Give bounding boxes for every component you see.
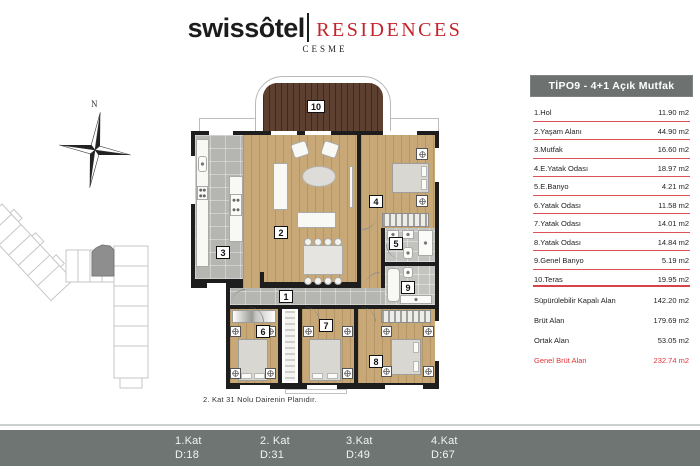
nightstand-icon bbox=[381, 326, 392, 337]
floor-label: 1.Kat bbox=[175, 434, 202, 448]
row-label: 1.Hol bbox=[534, 108, 552, 117]
nightstand-icon bbox=[342, 368, 353, 379]
bathtub-icon bbox=[387, 268, 400, 302]
row-label: 4.E.Yatak Odası bbox=[534, 164, 588, 173]
row-label: 3.Mutfak bbox=[534, 145, 563, 154]
window bbox=[305, 131, 331, 135]
row-label: 7.Yatak Odası bbox=[534, 219, 581, 228]
nightstand-icon bbox=[265, 368, 276, 379]
room-label-bed7: 7 bbox=[319, 319, 333, 332]
footer-bar: 1.Kat D:18 2. Kat D:31 3.Kat D:49 4.Kat … bbox=[0, 430, 700, 466]
table-row: 5.E.Banyo4.21 m2 bbox=[533, 177, 690, 196]
bed-icon bbox=[238, 339, 268, 381]
unit-label: D:67 bbox=[431, 448, 458, 462]
row-area: 16.60 m2 bbox=[658, 145, 689, 154]
bed-icon bbox=[392, 163, 429, 193]
unit-type-header: TİPO9 - 4+1 Açık Mutfak bbox=[530, 75, 693, 97]
table-row: 1.Hol11.90 m2 bbox=[533, 103, 690, 122]
table-row: 4.E.Yatak Odası18.97 m2 bbox=[533, 159, 690, 178]
room-label-ensuite: 5 bbox=[389, 237, 403, 250]
room-label-bed8: 8 bbox=[369, 355, 383, 368]
row-label: 9.Genel Banyo bbox=[534, 256, 584, 265]
chair-icon bbox=[314, 277, 322, 285]
bed-icon bbox=[391, 339, 421, 375]
sofa-icon bbox=[273, 163, 288, 210]
sofa-icon bbox=[297, 212, 336, 228]
vanity-icon bbox=[400, 295, 432, 304]
row-label: 8.Yatak Odası bbox=[534, 238, 581, 247]
sink-icon bbox=[402, 230, 414, 239]
window-sill bbox=[285, 389, 347, 394]
row-label: 2.Yaşam Alanı bbox=[534, 127, 582, 136]
window bbox=[271, 131, 297, 135]
nightstand-icon bbox=[416, 195, 428, 207]
table-row: 6.Yatak Odası11.58 m2 bbox=[533, 196, 690, 215]
unit-label: D:31 bbox=[260, 448, 290, 462]
row-area: 11.58 m2 bbox=[658, 201, 689, 210]
row-label: Brüt Alan bbox=[534, 316, 564, 325]
room-label-terrace: 10 bbox=[307, 100, 325, 113]
row-label: 5.E.Banyo bbox=[534, 182, 569, 191]
dining-table-icon bbox=[303, 245, 343, 275]
room-label-bath: 9 bbox=[401, 281, 415, 294]
window bbox=[435, 148, 439, 182]
compass-icon: N bbox=[53, 96, 137, 192]
chair-icon bbox=[334, 277, 342, 285]
compass-rose: N bbox=[53, 96, 137, 192]
row-label: 6.Yatak Odası bbox=[534, 201, 581, 210]
floor-label: 2. Kat bbox=[260, 434, 290, 448]
row-area: 5.19 m2 bbox=[662, 256, 689, 265]
nightstand-icon bbox=[423, 326, 434, 337]
bed-icon bbox=[309, 339, 341, 381]
row-area: 44.90 m2 bbox=[658, 127, 689, 136]
site-plan-icon bbox=[0, 198, 155, 393]
window bbox=[240, 385, 270, 389]
chair-icon bbox=[304, 277, 312, 285]
row-area: 53.05 m2 bbox=[658, 336, 689, 345]
logo-swissotel-text: swissôtel bbox=[188, 14, 305, 42]
table-row: 2.Yaşam Alanı44.90 m2 bbox=[533, 122, 690, 141]
north-label: N bbox=[91, 99, 98, 109]
nightstand-icon bbox=[416, 148, 428, 160]
toilet-icon bbox=[403, 247, 413, 259]
room-label-hall: 1 bbox=[279, 290, 293, 303]
row-area: 14.84 m2 bbox=[658, 238, 689, 247]
highlighted-unit bbox=[92, 245, 114, 276]
room-label-master: 4 bbox=[369, 195, 383, 208]
wardrobe-icon bbox=[381, 310, 431, 323]
row-label: Süpürülebilir Kapalı Alan bbox=[534, 296, 616, 305]
floor-label: 3.Kat bbox=[346, 434, 373, 448]
row-label: Genel Brüt Alan bbox=[534, 356, 587, 365]
summary-row: Ortak Alan53.05 m2 bbox=[533, 330, 690, 350]
plan-caption: 2. Kat 31 Nolu Dairenin Planıdır. bbox=[203, 395, 373, 404]
logo: swissôtel RESIDENCES CESME bbox=[150, 10, 500, 58]
unit-label: D:49 bbox=[346, 448, 373, 462]
floor-column-2: 2. Kat D:31 bbox=[260, 434, 290, 462]
row-area: 179.69 m2 bbox=[654, 316, 689, 325]
row-area: 19.95 m2 bbox=[658, 275, 689, 284]
room-label-kitchen: 3 bbox=[216, 246, 230, 259]
floor-column-1: 1.Kat D:18 bbox=[175, 434, 202, 462]
summary-row: Brüt Alan179.69 m2 bbox=[533, 310, 690, 330]
floor-plan: 10 2 3 4 5 9 1 6 7 8 bbox=[185, 76, 445, 398]
row-area: 142.20 m2 bbox=[654, 296, 689, 305]
room-label-bed6: 6 bbox=[256, 325, 270, 338]
row-area: 18.97 m2 bbox=[658, 164, 689, 173]
toilet-icon bbox=[403, 267, 413, 278]
window bbox=[209, 131, 233, 135]
table-row: 3.Mutfak16.60 m2 bbox=[533, 140, 690, 159]
wardrobe-icon bbox=[382, 213, 429, 227]
window bbox=[385, 385, 423, 389]
logo-bar bbox=[307, 13, 310, 42]
summary-total-row: Genel Brüt Alan232.74 m2 bbox=[533, 350, 690, 370]
oven-icon bbox=[197, 186, 208, 200]
window bbox=[435, 321, 439, 361]
nightstand-icon bbox=[230, 326, 241, 337]
kitchen-sink-icon bbox=[198, 156, 207, 172]
window bbox=[191, 156, 195, 204]
chair-icon bbox=[324, 277, 332, 285]
room-hall bbox=[230, 288, 385, 305]
nightstand-icon bbox=[423, 366, 434, 377]
site-plan-minimap bbox=[0, 198, 155, 393]
table-row: 9.Genel Banyo5.19 m2 bbox=[533, 251, 690, 270]
window bbox=[383, 131, 417, 135]
cooktop-icon bbox=[230, 194, 242, 216]
summary-table: Süpürülebilir Kapalı Alan142.20 m2 Brüt … bbox=[533, 285, 690, 370]
footer-divider bbox=[0, 424, 700, 426]
floor-column-4: 4.Kat D:67 bbox=[431, 434, 458, 462]
shower-icon bbox=[418, 230, 433, 256]
logo-residences-text: RESIDENCES bbox=[316, 18, 462, 42]
shaft-stripes bbox=[285, 311, 295, 381]
area-table: 1.Hol11.90 m2 2.Yaşam Alanı44.90 m2 3.Mu… bbox=[533, 103, 690, 287]
row-area: 14.01 m2 bbox=[658, 219, 689, 228]
floor-label: 4.Kat bbox=[431, 434, 458, 448]
nightstand-icon bbox=[303, 326, 314, 337]
summary-row: Süpürülebilir Kapalı Alan142.20 m2 bbox=[533, 290, 690, 310]
row-label: Ortak Alan bbox=[534, 336, 569, 345]
floor-column-3: 3.Kat D:49 bbox=[346, 434, 373, 462]
row-area: 4.21 m2 bbox=[662, 182, 689, 191]
unit-label: D:18 bbox=[175, 448, 202, 462]
table-row: 8.Yatak Odası14.84 m2 bbox=[533, 233, 690, 252]
shaft bbox=[282, 309, 298, 383]
tv-console-icon bbox=[349, 166, 353, 208]
brochure-page: swissôtel RESIDENCES CESME N bbox=[0, 0, 700, 466]
room-label-living: 2 bbox=[274, 226, 288, 239]
wall-stub bbox=[260, 272, 264, 284]
table-row: 7.Yatak Odası14.01 m2 bbox=[533, 214, 690, 233]
nightstand-icon bbox=[230, 368, 241, 379]
row-label: 10.Teras bbox=[534, 275, 563, 284]
logo-city-text: CESME bbox=[150, 44, 500, 54]
coffee-table-icon bbox=[302, 166, 336, 187]
nightstand-icon bbox=[342, 326, 353, 337]
row-area: 232.74 m2 bbox=[654, 356, 689, 365]
row-area: 11.90 m2 bbox=[658, 108, 689, 117]
